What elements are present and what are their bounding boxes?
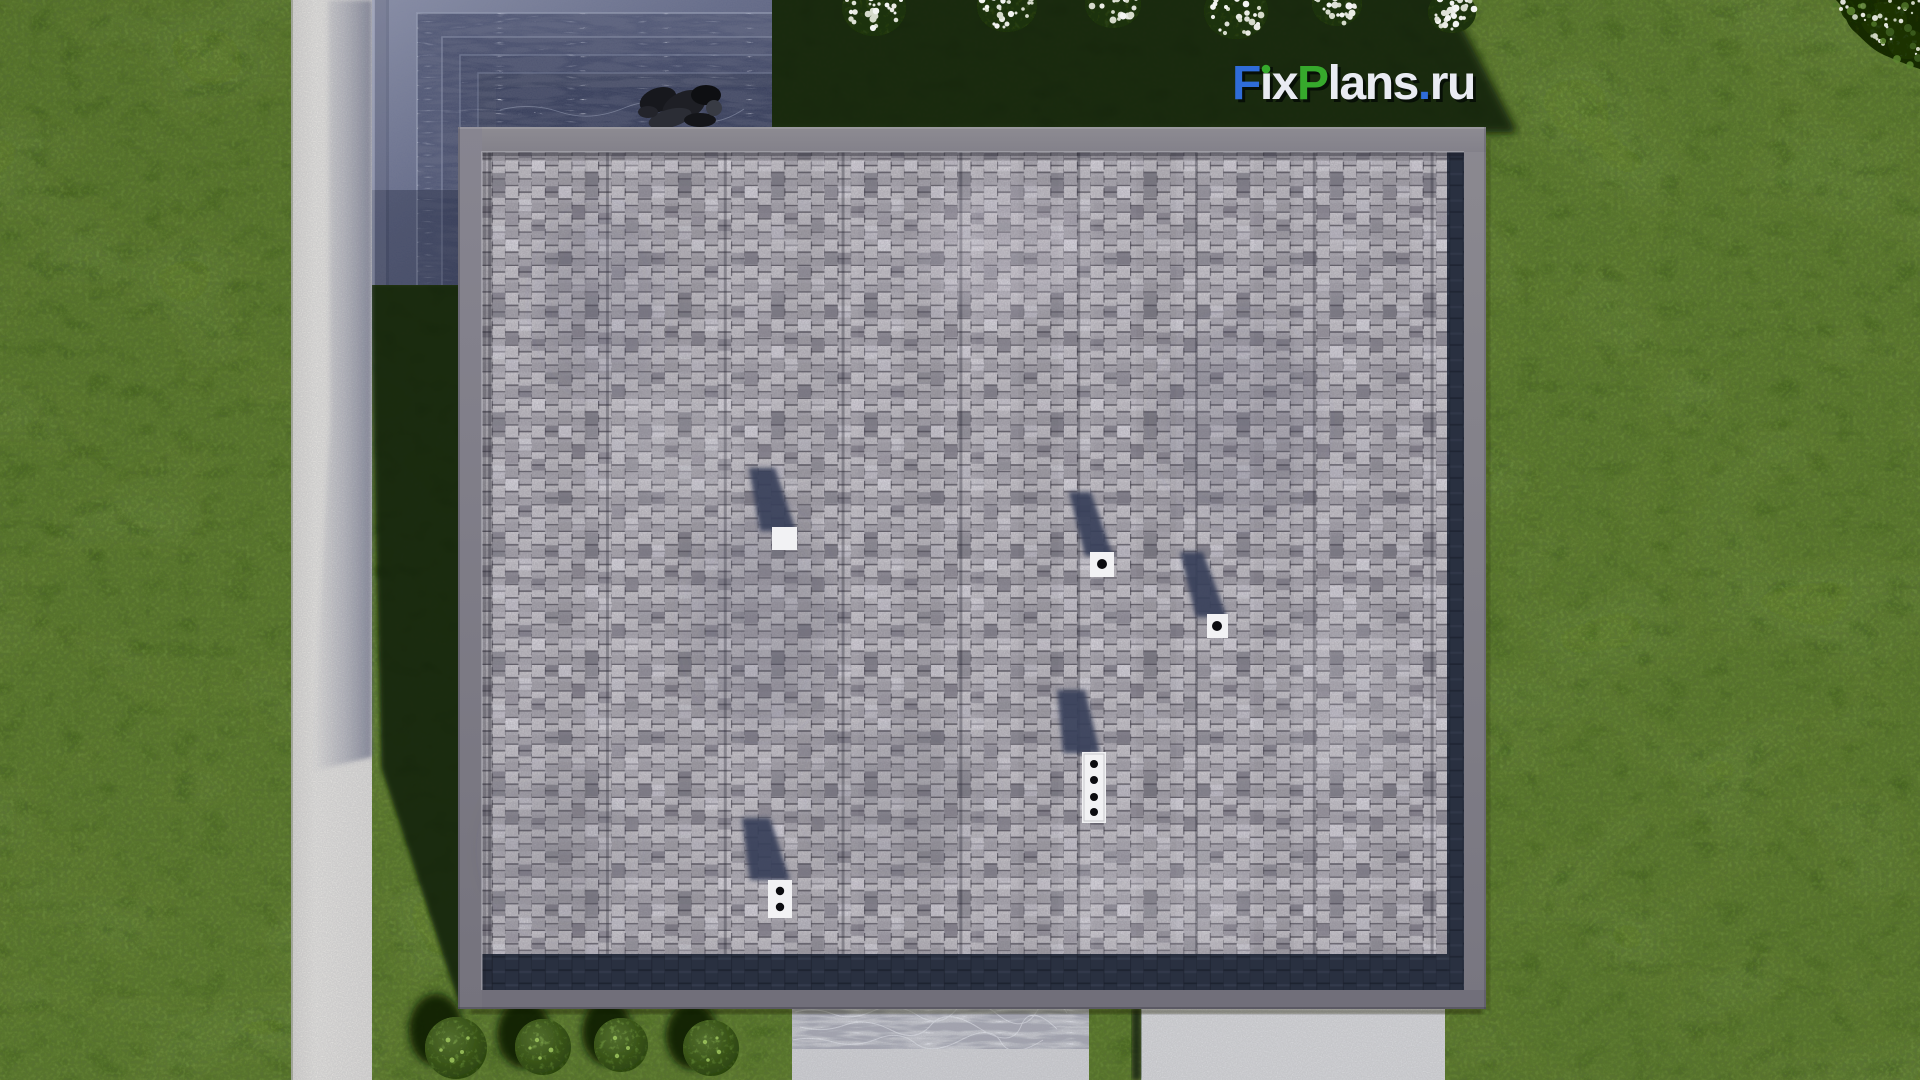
svg-text:FıxPlans.ru: FıxPlans.ru — [1232, 57, 1475, 110]
